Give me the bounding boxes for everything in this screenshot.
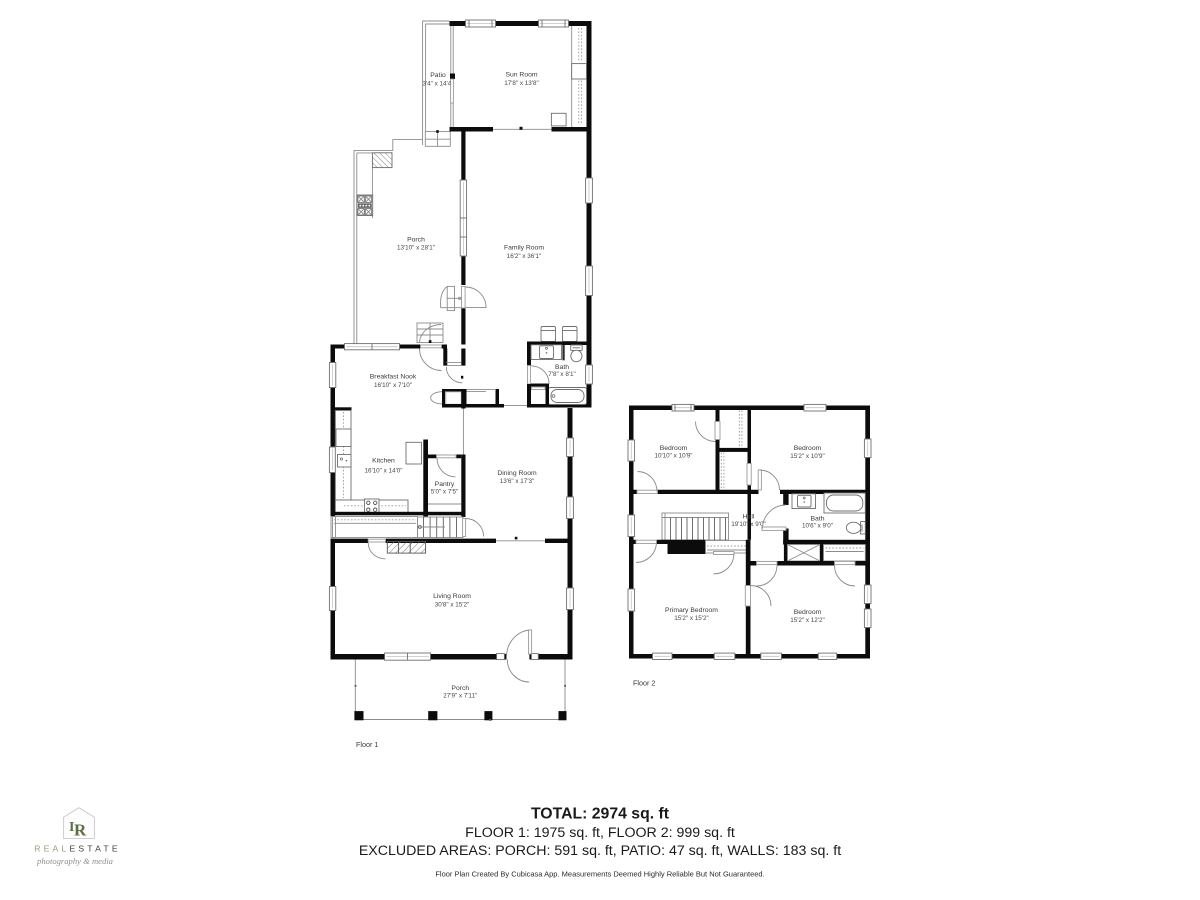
svg-text:Porch: Porch (451, 685, 469, 692)
svg-text:15'2" x 15'2": 15'2" x 15'2" (674, 615, 709, 622)
svg-text:27'9" x 7'11": 27'9" x 7'11" (443, 693, 477, 700)
svg-text:5'0" x 7'5": 5'0" x 7'5" (431, 489, 459, 496)
svg-text:10'10" x 10'9": 10'10" x 10'9" (654, 453, 692, 460)
svg-text:Porch: Porch (407, 237, 425, 244)
svg-text:13'10" x 28'1": 13'10" x 28'1" (397, 245, 435, 252)
svg-text:16'2" x 36'1": 16'2" x 36'1" (507, 253, 542, 260)
svg-text:Sun Room: Sun Room (505, 72, 537, 79)
svg-text:17'8" x 13'8": 17'8" x 13'8" (504, 80, 539, 87)
svg-text:Hall: Hall (743, 514, 755, 521)
svg-text:EXCLUDED AREAS: PORCH: 591 sq.: EXCLUDED AREAS: PORCH: 591 sq. ft, PATIO… (359, 843, 841, 859)
svg-text:Family Room: Family Room (504, 245, 544, 252)
svg-text:Pantry: Pantry (435, 481, 455, 488)
svg-text:REALESTATE: REALESTATE (34, 844, 121, 854)
svg-text:Kitchen: Kitchen (372, 458, 395, 465)
svg-text:Dining Room: Dining Room (497, 470, 537, 477)
svg-text:Bath: Bath (811, 516, 825, 523)
svg-text:Primary Bedroom: Primary Bedroom (665, 607, 718, 614)
svg-text:R: R (74, 821, 87, 840)
svg-text:10'6" x 9'0": 10'6" x 9'0" (802, 523, 833, 530)
svg-text:7'8" x 8'1": 7'8" x 8'1" (548, 371, 576, 378)
svg-text:Bedroom: Bedroom (660, 445, 688, 452)
svg-text:30'8" x 15'2": 30'8" x 15'2" (435, 602, 470, 609)
svg-text:FLOOR 1: 1975 sq. ft, FLOOR 2:: FLOOR 1: 1975 sq. ft, FLOOR 2: 999 sq. f… (465, 825, 735, 841)
svg-text:photography & media: photography & media (36, 856, 113, 866)
svg-text:Living Room: Living Room (433, 593, 471, 600)
svg-text:16'10" x 14'0": 16'10" x 14'0" (364, 468, 402, 475)
svg-text:19'10" x 9'0": 19'10" x 9'0" (731, 521, 766, 528)
svg-text:Patio: Patio (430, 72, 446, 79)
svg-text:Floor Plan Created By Cubicasa: Floor Plan Created By Cubicasa App. Meas… (435, 870, 764, 879)
svg-text:Floor 2: Floor 2 (633, 679, 655, 688)
svg-text:13'6" x 17'3": 13'6" x 17'3" (500, 478, 535, 485)
svg-text:Floor 1: Floor 1 (356, 740, 378, 749)
svg-text:16'10" x 7'10": 16'10" x 7'10" (374, 382, 412, 389)
svg-text:Breakfast Nook: Breakfast Nook (370, 374, 417, 381)
svg-text:Bath: Bath (555, 364, 569, 371)
svg-text:TOTAL: 2974 sq. ft: TOTAL: 2974 sq. ft (531, 806, 670, 823)
svg-text:Bedroom: Bedroom (794, 609, 822, 616)
svg-text:3'4" x 14'4": 3'4" x 14'4" (422, 81, 453, 88)
svg-text:Bedroom: Bedroom (794, 445, 822, 452)
svg-text:15'2" x 10'9": 15'2" x 10'9" (790, 453, 825, 460)
svg-text:15'2" x 12'2": 15'2" x 12'2" (790, 617, 825, 624)
